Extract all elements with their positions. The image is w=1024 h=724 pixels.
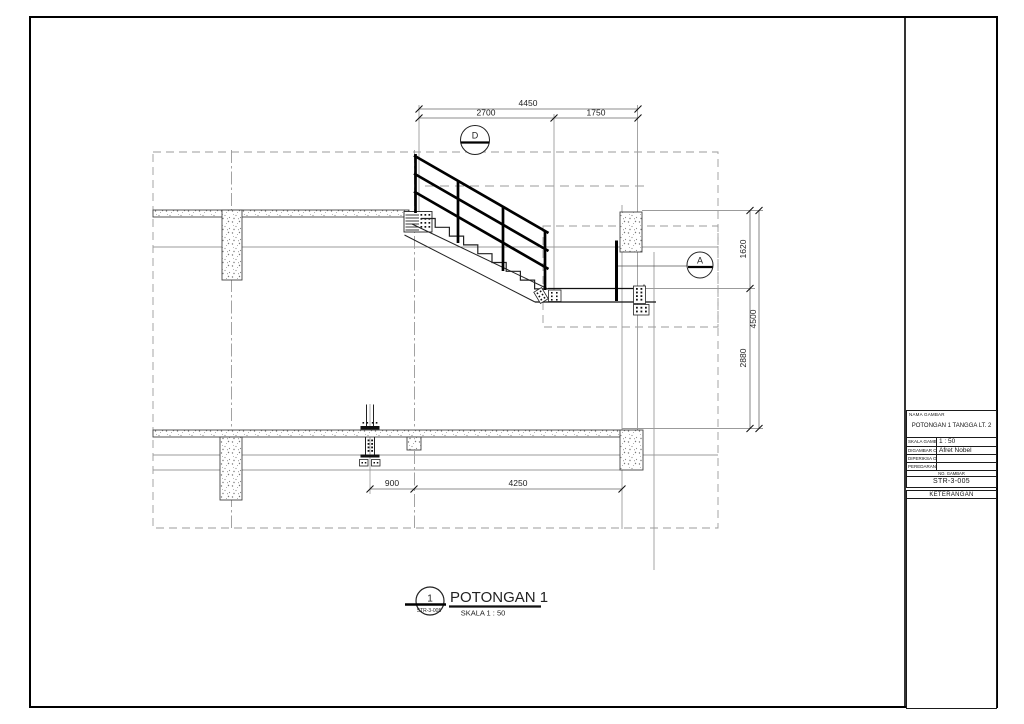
grid-bubble-a: A <box>617 252 713 278</box>
distribution-value <box>937 463 996 470</box>
drawing-name-label: NAMA GAMBAR <box>909 412 945 417</box>
title-block-name-box: NAMA GAMBAR POTONGAN 1 TANGGA LT. 2 <box>906 410 997 438</box>
notes-header: KETERANGAN <box>906 490 997 499</box>
lower-left-beam <box>220 437 242 500</box>
construction-lines <box>153 105 763 570</box>
dimension-bottom: 900 4250 <box>367 478 626 493</box>
table-row-checked-by: DIPERIKSA OLEH <box>907 454 996 462</box>
upper-right-beam <box>620 212 642 252</box>
grid-bubble-d: D <box>461 126 490 155</box>
dim-right-upper: 1620 <box>738 239 748 258</box>
stair-top-bracket <box>404 212 432 233</box>
callout-sheet-ref: STR-3-005 <box>417 608 442 614</box>
lower-floor-slab <box>153 430 620 437</box>
dimension-top: 4450 2700 1750 <box>416 98 642 122</box>
checked-by-label: DIPERIKSA OLEH <box>907 455 937 462</box>
stair-section <box>404 212 656 316</box>
drawn-by-label: DIGAMBAR OLEH <box>907 447 937 454</box>
notes-box <box>906 499 997 709</box>
dim-right-lower: 2880 <box>738 348 748 367</box>
drawn-by-value: Afret Nobel <box>937 447 996 454</box>
title-block: NAMA GAMBAR POTONGAN 1 TANGGA LT. 2 SKAL… <box>906 410 997 709</box>
stair-railing <box>414 154 549 290</box>
scale-value: 1 : 50 <box>937 438 996 446</box>
stair-stringer <box>405 224 549 302</box>
bubble-a-label: A <box>697 256 703 266</box>
callout-number: 1 <box>427 594 433 605</box>
upper-floor-slab <box>153 210 409 217</box>
title-block-table: SKALA GAMBAR 1 : 50 DIGAMBAR OLEH Afret … <box>906 438 997 488</box>
centerlines <box>232 150 415 528</box>
drawing-canvas: 4450 2700 1750 1620 2880 4500 900 4250 <box>0 0 1024 724</box>
distribution-label: PEREDARAN UNTUK <box>907 463 937 470</box>
drawing-name: POTONGAN 1 TANGGA LT. 2 <box>907 423 996 429</box>
table-row-drawn-by: DIGAMBAR OLEH Afret Nobel <box>907 446 996 454</box>
dim-bottom-right: 4250 <box>509 478 528 488</box>
view-title: POTONGAN 1 <box>450 589 548 606</box>
table-row-scale: SKALA GAMBAR 1 : 50 <box>907 438 996 446</box>
landing-right-connection <box>634 286 650 315</box>
lower-middle-beam <box>407 437 421 450</box>
dim-right-total: 4500 <box>748 309 758 328</box>
lower-right-beam <box>620 430 643 470</box>
drawing-number: STR-3-005 <box>907 476 996 487</box>
dim-top-left: 2700 <box>477 108 496 118</box>
upper-left-beam <box>222 210 242 280</box>
table-row-distribution: PEREDARAN UNTUK <box>907 462 996 470</box>
view-scale: SKALA 1 : 50 <box>461 609 506 618</box>
drawing-sheet: 4450 2700 1750 1620 2880 4500 900 4250 <box>0 0 1024 724</box>
stringer-base-connection <box>534 288 561 304</box>
dim-top-right: 1750 <box>587 108 606 118</box>
dim-bottom-left: 900 <box>385 478 399 488</box>
dim-top-total: 4450 <box>519 98 538 108</box>
concrete-structure <box>153 210 643 500</box>
bubble-d-label: D <box>472 131 479 141</box>
scale-label: SKALA GAMBAR <box>907 438 937 446</box>
view-title-callout: 1 STR-3-005 POTONGAN 1 SKALA 1 : 50 <box>405 587 548 618</box>
checked-by-value <box>937 455 996 462</box>
dimension-right: 1620 2880 4500 <box>738 207 763 432</box>
